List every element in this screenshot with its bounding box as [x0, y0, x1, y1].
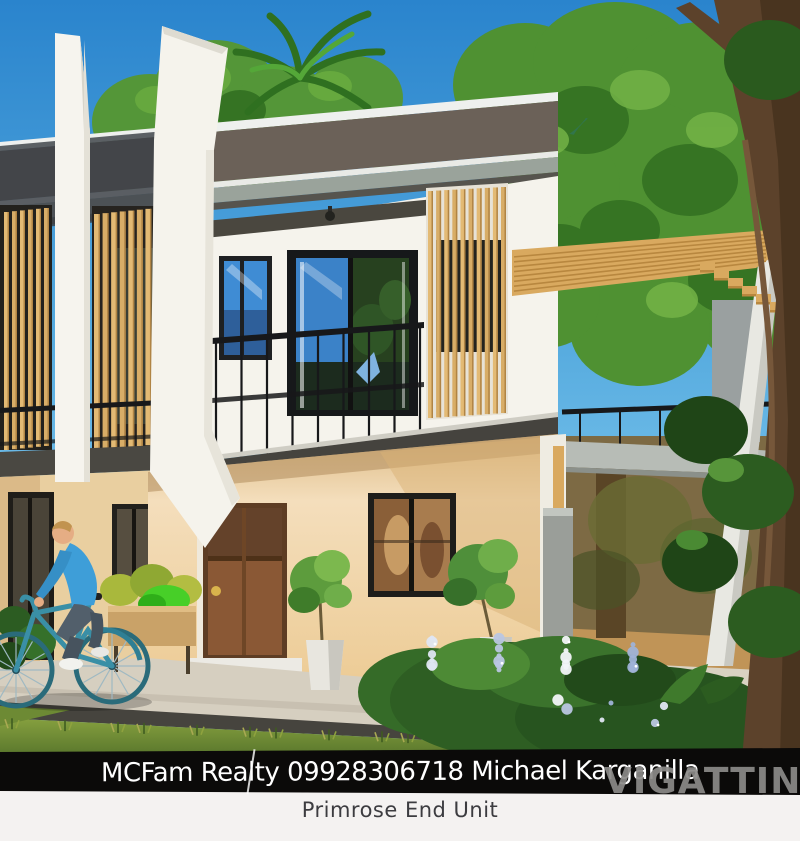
- ground-floor-window: [368, 493, 456, 597]
- watermark-text: VIGATTIN: [604, 761, 800, 802]
- balcony-slat-screen-right: [426, 183, 508, 420]
- real-estate-ad-image: Primrose End Unit MCFam Realty 099283067…: [0, 0, 800, 841]
- upper-small-window: [219, 256, 272, 360]
- door-knob: [211, 586, 221, 596]
- house-render-scene: [0, 0, 800, 841]
- party-wall-fin-left: [55, 33, 90, 482]
